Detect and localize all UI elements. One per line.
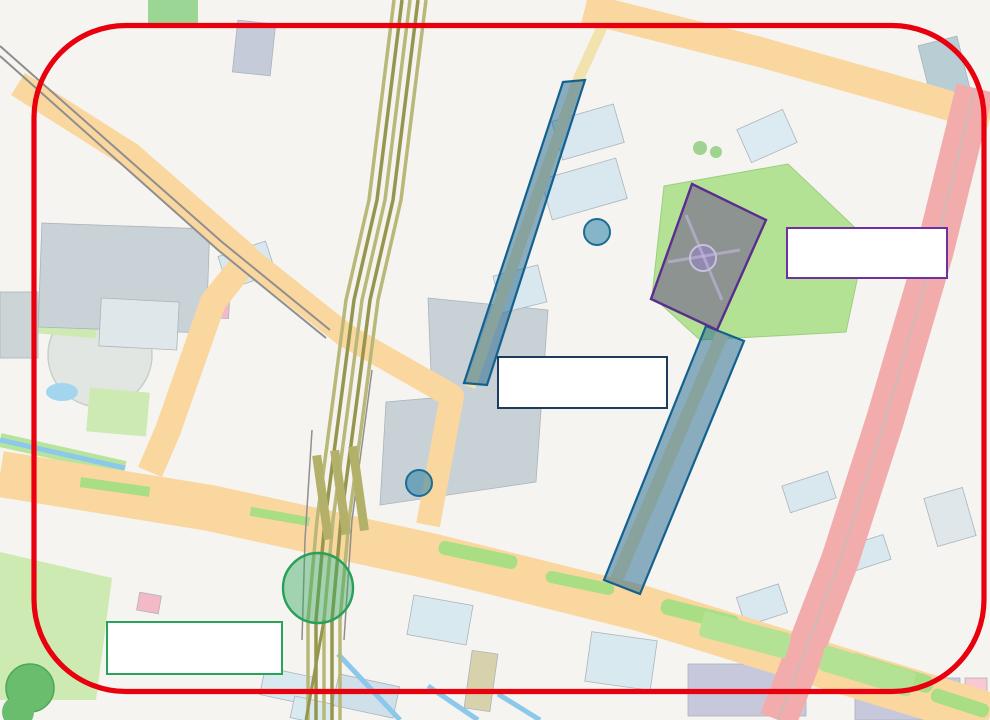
annotation-boxes-layer (0, 0, 990, 720)
asunarou-railway-illumination-train-box (106, 621, 283, 675)
yokkaichi-winter-illumination-box (497, 356, 668, 409)
annotated-city-map (0, 0, 990, 720)
suwa-park-gift-of-light-box (786, 227, 948, 279)
